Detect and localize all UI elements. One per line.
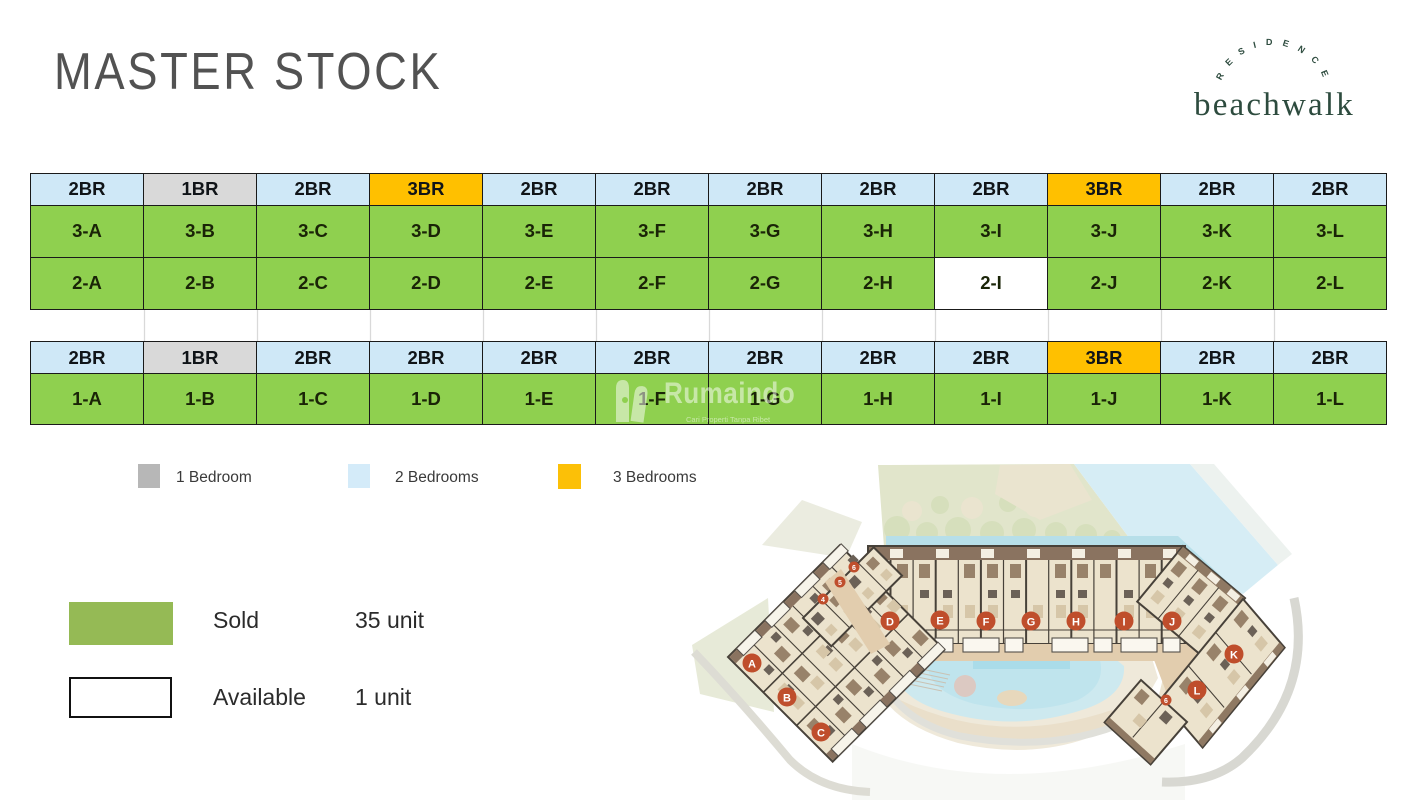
svg-text:L: L (1194, 686, 1201, 698)
svg-text:E: E (936, 616, 943, 628)
svg-text:I: I (1122, 617, 1125, 629)
svg-text:A: A (748, 659, 756, 671)
svg-text:6: 6 (1164, 698, 1168, 705)
svg-text:5: 5 (838, 580, 842, 587)
svg-text:beachwalk: beachwalk (1194, 87, 1355, 123)
svg-text:G: G (1027, 617, 1036, 629)
svg-text:C: C (817, 728, 825, 740)
svg-text:D: D (886, 617, 894, 629)
svg-text:B: B (783, 693, 791, 705)
svg-text:H: H (1072, 617, 1080, 629)
svg-text:4: 4 (821, 597, 825, 604)
svg-text:RESIDENCE: RESIDENCE (1214, 37, 1334, 87)
svg-text:6: 6 (852, 565, 856, 572)
svg-text:F: F (983, 617, 990, 629)
svg-text:J: J (1169, 617, 1175, 629)
svg-text:K: K (1230, 650, 1238, 662)
